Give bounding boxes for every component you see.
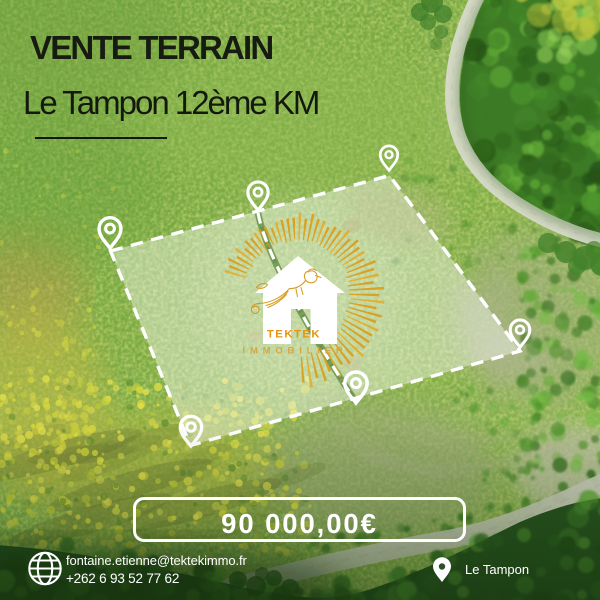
svg-text:IMMOBILIER: IMMOBILIER — [243, 346, 348, 357]
svg-text:TEKTEK: TEKTEK — [267, 329, 321, 341]
